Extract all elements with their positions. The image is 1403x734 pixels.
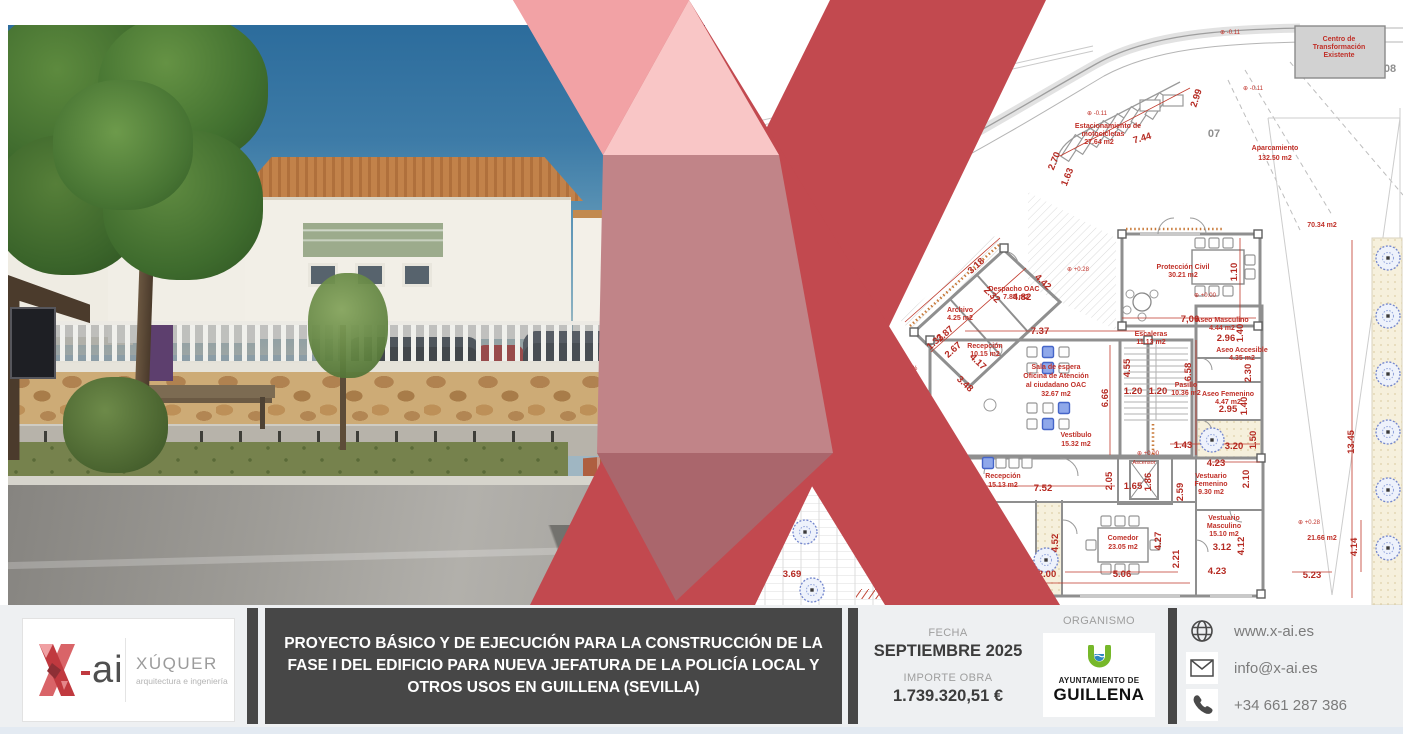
contact-block: www.x-ai.es info@x-ai.es +34 661 287 386 bbox=[1186, 615, 1396, 721]
contact-website[interactable]: www.x-ai.es bbox=[1234, 623, 1314, 640]
footer-bar: ai XÚQUER arquitectura e ingeniería PROY… bbox=[0, 605, 1403, 734]
phone-icon bbox=[1186, 689, 1218, 721]
xai-dash bbox=[81, 671, 90, 675]
guillena-icon bbox=[1082, 645, 1116, 673]
fecha-value: SEPTIEMBRE 2025 bbox=[858, 642, 1038, 661]
contact-email[interactable]: info@x-ai.es bbox=[1234, 660, 1318, 677]
project-cover-page: Centro deTransformaciónExistenteEstacion… bbox=[0, 0, 1403, 734]
contact-email-row: info@x-ai.es bbox=[1186, 652, 1396, 684]
divider-bar bbox=[848, 608, 858, 724]
fecha-label: FECHA bbox=[858, 627, 1038, 639]
divider-bar bbox=[1168, 608, 1177, 724]
importe-label: IMPORTE OBRA bbox=[858, 672, 1038, 684]
organismo-label: ORGANISMO bbox=[1038, 615, 1160, 627]
project-meta: FECHA SEPTIEMBRE 2025 IMPORTE OBRA 1.739… bbox=[858, 608, 1038, 724]
mail-icon bbox=[1186, 652, 1218, 684]
guillena-line2: GUILLENA bbox=[1054, 685, 1145, 705]
brand-x-graphic bbox=[0, 0, 1403, 605]
globe-icon bbox=[1186, 615, 1218, 647]
hero-section: Centro deTransformaciónExistenteEstacion… bbox=[0, 0, 1403, 605]
firm-tagline: arquitectura e ingeniería bbox=[136, 676, 228, 686]
xai-logo: ai bbox=[23, 642, 125, 698]
contact-website-row: www.x-ai.es bbox=[1186, 615, 1396, 647]
firm-block: XÚQUER arquitectura e ingeniería bbox=[125, 638, 228, 702]
xai-logo-box: ai XÚQUER arquitectura e ingeniería bbox=[22, 618, 235, 722]
importe-value: 1.739.320,51 € bbox=[858, 687, 1038, 706]
firm-name: XÚQUER bbox=[136, 654, 228, 674]
project-title-box: PROYECTO BÁSICO Y DE EJECUCIÓN PARA LA C… bbox=[265, 608, 842, 724]
xai-x-icon bbox=[35, 642, 79, 698]
project-title: PROYECTO BÁSICO Y DE EJECUCIÓN PARA LA C… bbox=[280, 633, 828, 699]
xai-ai-text: ai bbox=[92, 651, 124, 689]
contact-phone-row: +34 661 287 386 bbox=[1186, 689, 1396, 721]
organismo-block: ORGANISMO AYUNTAMIENTO DE GUILLENA bbox=[1038, 615, 1160, 717]
contact-phone[interactable]: +34 661 287 386 bbox=[1234, 697, 1347, 714]
divider-bar bbox=[247, 608, 258, 724]
guillena-line1: AYUNTAMIENTO DE bbox=[1059, 676, 1140, 685]
guillena-logo-box: AYUNTAMIENTO DE GUILLENA bbox=[1043, 633, 1155, 717]
